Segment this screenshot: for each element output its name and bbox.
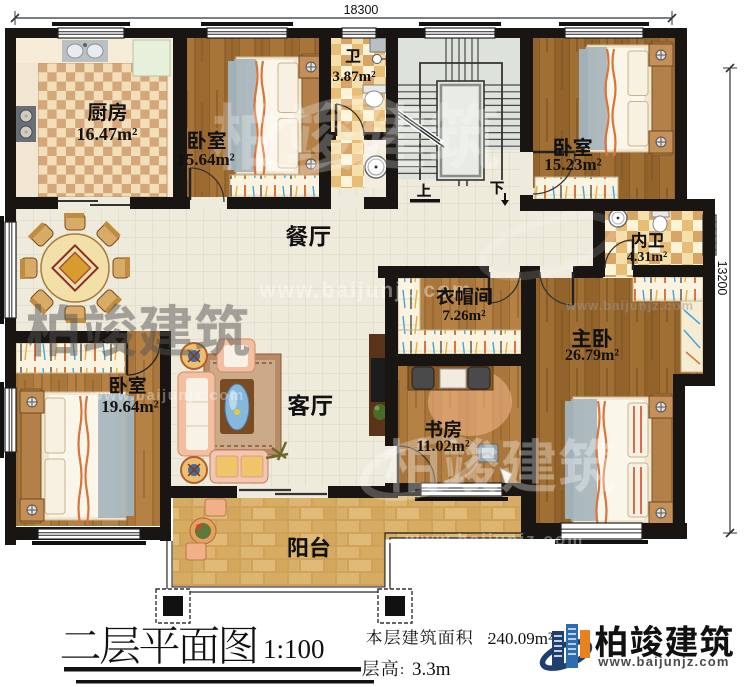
svg-text:16.47m²: 16.47m² <box>77 124 138 144</box>
svg-text:www.baijunjz.com: www.baijunjz.com <box>565 298 694 313</box>
svg-text::: : <box>400 662 404 678</box>
svg-text:3.87m²: 3.87m² <box>332 69 376 85</box>
svg-text:3.3m: 3.3m <box>412 659 451 680</box>
svg-text:1:100: 1:100 <box>263 634 325 664</box>
svg-text:www.baijunjz.com: www.baijunjz.com <box>405 530 585 549</box>
svg-text:19.64m²: 19.64m² <box>101 397 159 416</box>
svg-text:13200: 13200 <box>715 261 729 296</box>
svg-text:15.64m²: 15.64m² <box>177 150 235 169</box>
svg-text:18300: 18300 <box>344 3 379 17</box>
svg-text:7.26m²: 7.26m² <box>442 308 486 324</box>
svg-text:11.02m²: 11.02m² <box>416 438 469 455</box>
svg-text:4.31m²: 4.31m² <box>627 250 667 265</box>
svg-text:240.09m²: 240.09m² <box>488 629 553 648</box>
svg-text:www.baijunjz.com: www.baijunjz.com <box>597 654 729 669</box>
svg-text:26.79m²: 26.79m² <box>565 347 619 364</box>
svg-text:15.23m²: 15.23m² <box>544 155 602 174</box>
